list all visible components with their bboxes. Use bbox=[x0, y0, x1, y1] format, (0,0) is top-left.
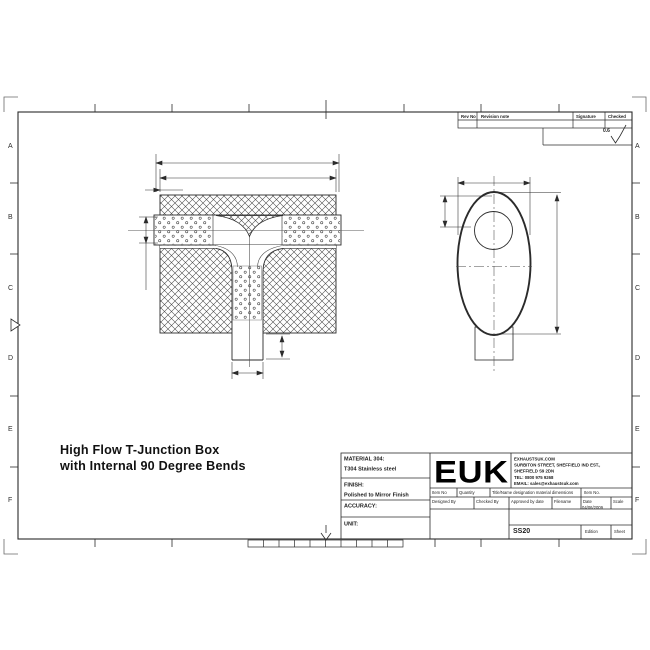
designed-by-label: Designed By bbox=[432, 499, 456, 504]
perforated-tube-outlet bbox=[233, 266, 262, 320]
date-value: 04/06/2009 bbox=[582, 505, 603, 510]
material-label: MATERIAL 304: bbox=[344, 456, 384, 462]
parts-col-item-no: Item No bbox=[432, 490, 447, 495]
trim-mark-bottom-left bbox=[4, 539, 18, 554]
edition-label: Edition bbox=[585, 529, 598, 534]
sheet-label: Sheet bbox=[614, 529, 625, 534]
finish-value: Polished to Mirror Finish bbox=[344, 492, 409, 498]
scale-strip bbox=[248, 540, 403, 547]
drawing-title-line2: with Internal 90 Degree Bends bbox=[60, 459, 246, 475]
material-value: T304 Stainless steel bbox=[344, 466, 396, 472]
surface-finish-value: 0.6 bbox=[603, 128, 610, 134]
signature-header: Signature bbox=[576, 114, 596, 119]
company-email: EMAIL: sales@exhaustsuk.com bbox=[514, 480, 600, 486]
zone-letter-right-f: F bbox=[635, 497, 639, 504]
accuracy-label: ACCURACY: bbox=[344, 503, 377, 509]
parts-col-item-no2: Item No. bbox=[584, 490, 600, 495]
unit-label: UNIT: bbox=[344, 521, 358, 527]
finish-label: FINISH: bbox=[344, 482, 364, 488]
engineering-drawing-sheet: A B C D E F A B C D E F Rev No Revision … bbox=[0, 0, 650, 650]
cad-drawing-canvas bbox=[0, 0, 650, 650]
zone-letter-right-d: D bbox=[635, 355, 640, 362]
zone-letter-right-b: B bbox=[635, 214, 640, 221]
parts-col-title: Title/Name designation material dimensio… bbox=[492, 490, 573, 495]
drawing-number: SS20 bbox=[513, 528, 530, 535]
bottom-center-arrow-icon bbox=[321, 525, 331, 540]
end-view-oval bbox=[456, 176, 532, 371]
checked-by-label: Checked By bbox=[476, 499, 499, 504]
approved-by-label: Approved by date bbox=[511, 499, 544, 504]
drawing-title-line1: High Flow T-Junction Box bbox=[60, 443, 246, 459]
zone-letter-right-e: E bbox=[635, 426, 640, 433]
zone-letter-left-d: D bbox=[8, 355, 13, 362]
company-address-block: EXHAUSTSUK.COM SURBITON STREET, SHEFFIEL… bbox=[514, 456, 600, 487]
euk-logo: EUK bbox=[434, 455, 509, 491]
zone-letter-right-c: C bbox=[635, 285, 640, 292]
rev-no-header: Rev No bbox=[461, 114, 476, 119]
scale-label: Scale bbox=[613, 499, 623, 504]
parts-col-quantity: Quantity bbox=[459, 490, 475, 495]
zone-letter-left-a: A bbox=[8, 143, 13, 150]
trim-mark-top-left bbox=[4, 97, 18, 112]
date-label: Date bbox=[583, 499, 592, 504]
zone-letter-left-e: E bbox=[8, 426, 13, 433]
zone-letter-right-a: A bbox=[635, 143, 640, 150]
right-zone-ticks bbox=[632, 183, 640, 467]
perforated-tube-right bbox=[283, 216, 341, 244]
trim-mark-top-right bbox=[632, 97, 646, 112]
perforated-tube-left bbox=[155, 216, 212, 244]
checked-header: Checked bbox=[608, 114, 626, 119]
zone-letter-left-c: C bbox=[8, 285, 13, 292]
zone-letter-left-f: F bbox=[8, 497, 12, 504]
revision-note-header: Revision note bbox=[481, 114, 509, 119]
zone-letter-left-b: B bbox=[8, 214, 13, 221]
drawing-title: High Flow T-Junction Box with Internal 9… bbox=[60, 443, 246, 474]
filename-label: Filename bbox=[554, 499, 571, 504]
left-datum-triangle-icon bbox=[11, 319, 20, 331]
trim-mark-bottom-right bbox=[632, 539, 646, 554]
section-view-t-junction bbox=[128, 195, 364, 367]
